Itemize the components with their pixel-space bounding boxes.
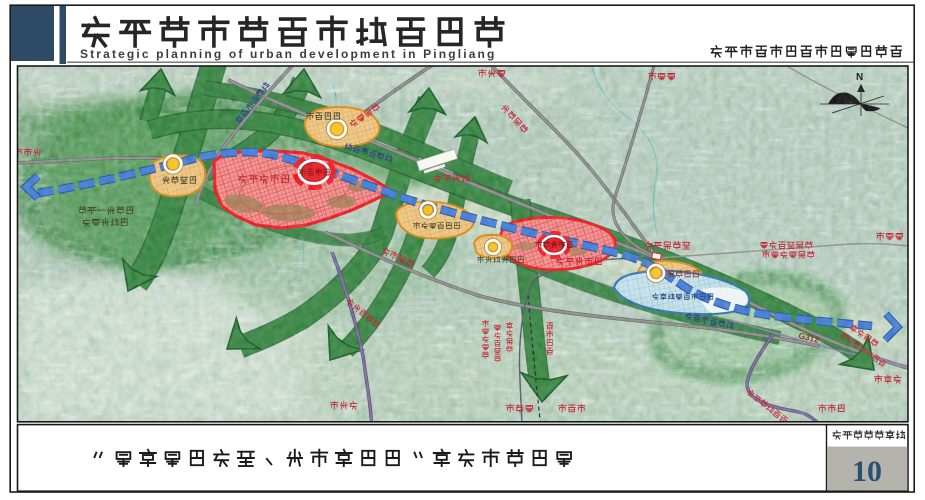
- svg-text:Strategic planning of urban de: Strategic planning of urban development …: [80, 47, 497, 61]
- svg-text:10: 10: [852, 455, 882, 488]
